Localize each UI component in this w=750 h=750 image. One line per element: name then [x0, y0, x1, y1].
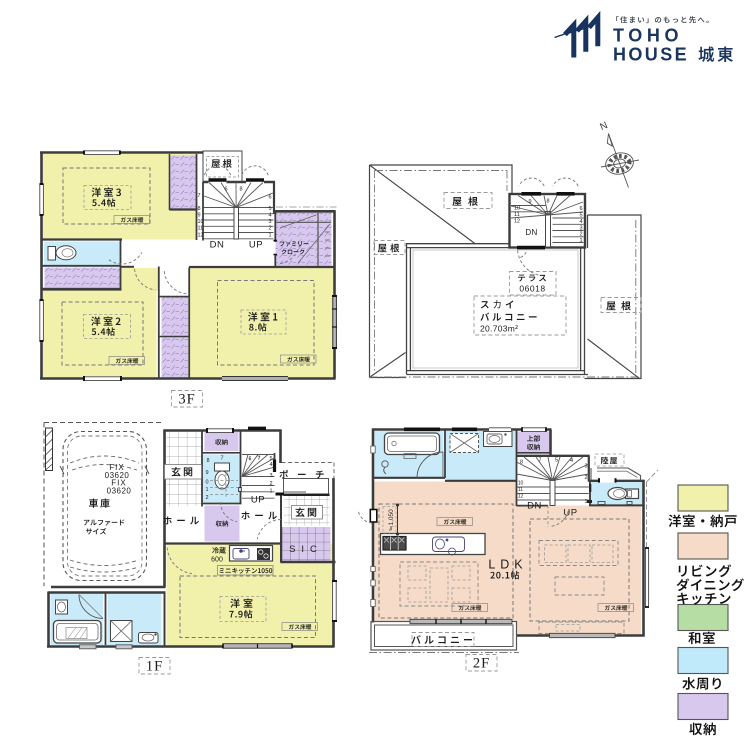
svg-text:収納: 収納	[689, 718, 717, 738]
svg-text:≒1,050: ≒1,050	[388, 509, 395, 531]
svg-text:06018: 06018	[519, 284, 545, 294]
svg-text:2: 2	[584, 475, 587, 481]
svg-text:5: 5	[268, 206, 271, 212]
svg-text:600: 600	[211, 557, 223, 564]
svg-text:8: 8	[239, 187, 242, 193]
svg-text:SIC: SIC	[289, 544, 323, 555]
svg-text:ガス床暖: ガス床暖	[604, 603, 627, 612]
svg-text:ガス床暖: ガス床暖	[443, 517, 466, 526]
svg-text:7: 7	[258, 455, 261, 462]
svg-text:8.帖: 8.帖	[249, 321, 268, 334]
svg-text:12: 12	[514, 219, 520, 225]
svg-text:9: 9	[528, 199, 531, 205]
svg-text:洋室・納戸: 洋室・納戸	[668, 510, 738, 530]
svg-text:DN: DN	[525, 228, 537, 237]
svg-text:6: 6	[224, 187, 227, 193]
svg-text:4: 4	[268, 213, 271, 219]
svg-text:ミニキッチン1050: ミニキッチン1050	[218, 565, 272, 575]
svg-text:DN: DN	[210, 240, 225, 251]
svg-text:10: 10	[518, 481, 524, 487]
svg-text:0: 0	[205, 480, 208, 486]
svg-text:5.4帖: 5.4帖	[91, 325, 115, 338]
svg-text:12: 12	[198, 233, 204, 239]
svg-text:20.703m²: 20.703m²	[480, 324, 518, 334]
svg-text:8: 8	[198, 206, 201, 212]
svg-text:「住まい」のもっと先へ。: 「住まい」のもっと先へ。	[611, 15, 714, 26]
svg-text:1F: 1F	[146, 659, 163, 675]
svg-text:4: 4	[269, 462, 272, 468]
svg-text:和室: 和室	[688, 627, 716, 647]
svg-text:冷蔵: 冷蔵	[212, 546, 226, 556]
svg-text:ガス床暖: ガス床暖	[288, 622, 311, 631]
svg-text:DN: DN	[527, 501, 542, 512]
svg-text:水周り: 水周り	[682, 673, 724, 693]
svg-text:10: 10	[514, 206, 520, 212]
svg-text:11: 11	[518, 487, 523, 493]
svg-text:9: 9	[198, 213, 201, 219]
svg-text:陸屋: 陸屋	[601, 456, 619, 467]
svg-text:バルコニー: バルコニー	[411, 632, 476, 647]
svg-text:車庫: 車庫	[89, 495, 112, 510]
svg-text:12: 12	[518, 494, 524, 500]
svg-text:ホール: ホール	[163, 513, 204, 527]
svg-text:3F: 3F	[178, 392, 195, 408]
svg-text:2F: 2F	[473, 656, 490, 672]
svg-text:8: 8	[206, 458, 209, 464]
svg-text:2: 2	[269, 481, 272, 487]
svg-text:ガス床暖: ガス床暖	[115, 356, 138, 365]
svg-text:1: 1	[268, 233, 271, 239]
svg-text:7: 7	[538, 458, 541, 464]
svg-text:6: 6	[249, 455, 252, 462]
svg-text:1: 1	[579, 238, 582, 244]
svg-text:11: 11	[514, 212, 520, 218]
svg-text:11: 11	[198, 226, 204, 232]
svg-text:6: 6	[268, 195, 271, 201]
svg-text:1: 1	[205, 487, 208, 493]
svg-text:玄関: 玄関	[295, 504, 319, 519]
svg-text:4: 4	[579, 219, 582, 225]
svg-text:5: 5	[579, 213, 582, 219]
svg-text:3: 3	[269, 473, 272, 479]
svg-text:7.9帖: 7.9帖	[229, 608, 253, 621]
svg-text:6: 6	[579, 206, 582, 212]
svg-text:バルコニー: バルコニー	[480, 310, 540, 324]
svg-text:テラス: テラス	[517, 272, 549, 284]
svg-text:1: 1	[269, 489, 272, 495]
svg-text:屋根: 屋根	[606, 298, 636, 313]
svg-text:HOUSE: HOUSE	[613, 45, 689, 65]
svg-text:5: 5	[555, 458, 558, 464]
svg-text:ガス床暖: ガス床暖	[287, 354, 310, 363]
svg-text:5.4帖: 5.4帖	[92, 196, 116, 209]
svg-text:ガス床暖: ガス床暖	[120, 215, 143, 224]
svg-text:9: 9	[205, 470, 208, 476]
svg-text:UP: UP	[249, 240, 263, 251]
svg-text:収納: 収納	[216, 518, 230, 528]
svg-text:屋根: 屋根	[452, 193, 484, 208]
svg-text:20.1帖: 20.1帖	[490, 569, 520, 582]
svg-text:2: 2	[205, 495, 208, 501]
svg-text:サイズ: サイズ	[86, 527, 107, 537]
svg-text:城東: 城東	[698, 42, 736, 66]
svg-text:7: 7	[220, 456, 223, 462]
svg-text:TOHO: TOHO	[613, 26, 683, 46]
svg-text:4: 4	[570, 458, 573, 464]
svg-text:7: 7	[198, 193, 201, 199]
svg-text:クローク: クローク	[281, 247, 305, 256]
svg-text:屋根: 屋根	[211, 156, 234, 170]
svg-text:8: 8	[546, 199, 549, 205]
svg-text:キッチン: キッチン	[676, 588, 732, 608]
svg-text:UP: UP	[251, 495, 265, 506]
svg-text:2: 2	[268, 226, 271, 232]
svg-text:10: 10	[198, 219, 204, 225]
svg-text:屋根: 屋根	[377, 241, 402, 255]
svg-text:3: 3	[584, 464, 587, 470]
svg-text:ポーチ: ポーチ	[279, 467, 333, 481]
svg-text:収納: 収納	[527, 442, 541, 452]
svg-text:玄関: 玄関	[171, 464, 195, 479]
svg-text:3: 3	[268, 219, 271, 225]
svg-text:収納: 収納	[215, 437, 229, 447]
svg-text:2: 2	[579, 232, 582, 238]
svg-text:8: 8	[520, 460, 523, 466]
